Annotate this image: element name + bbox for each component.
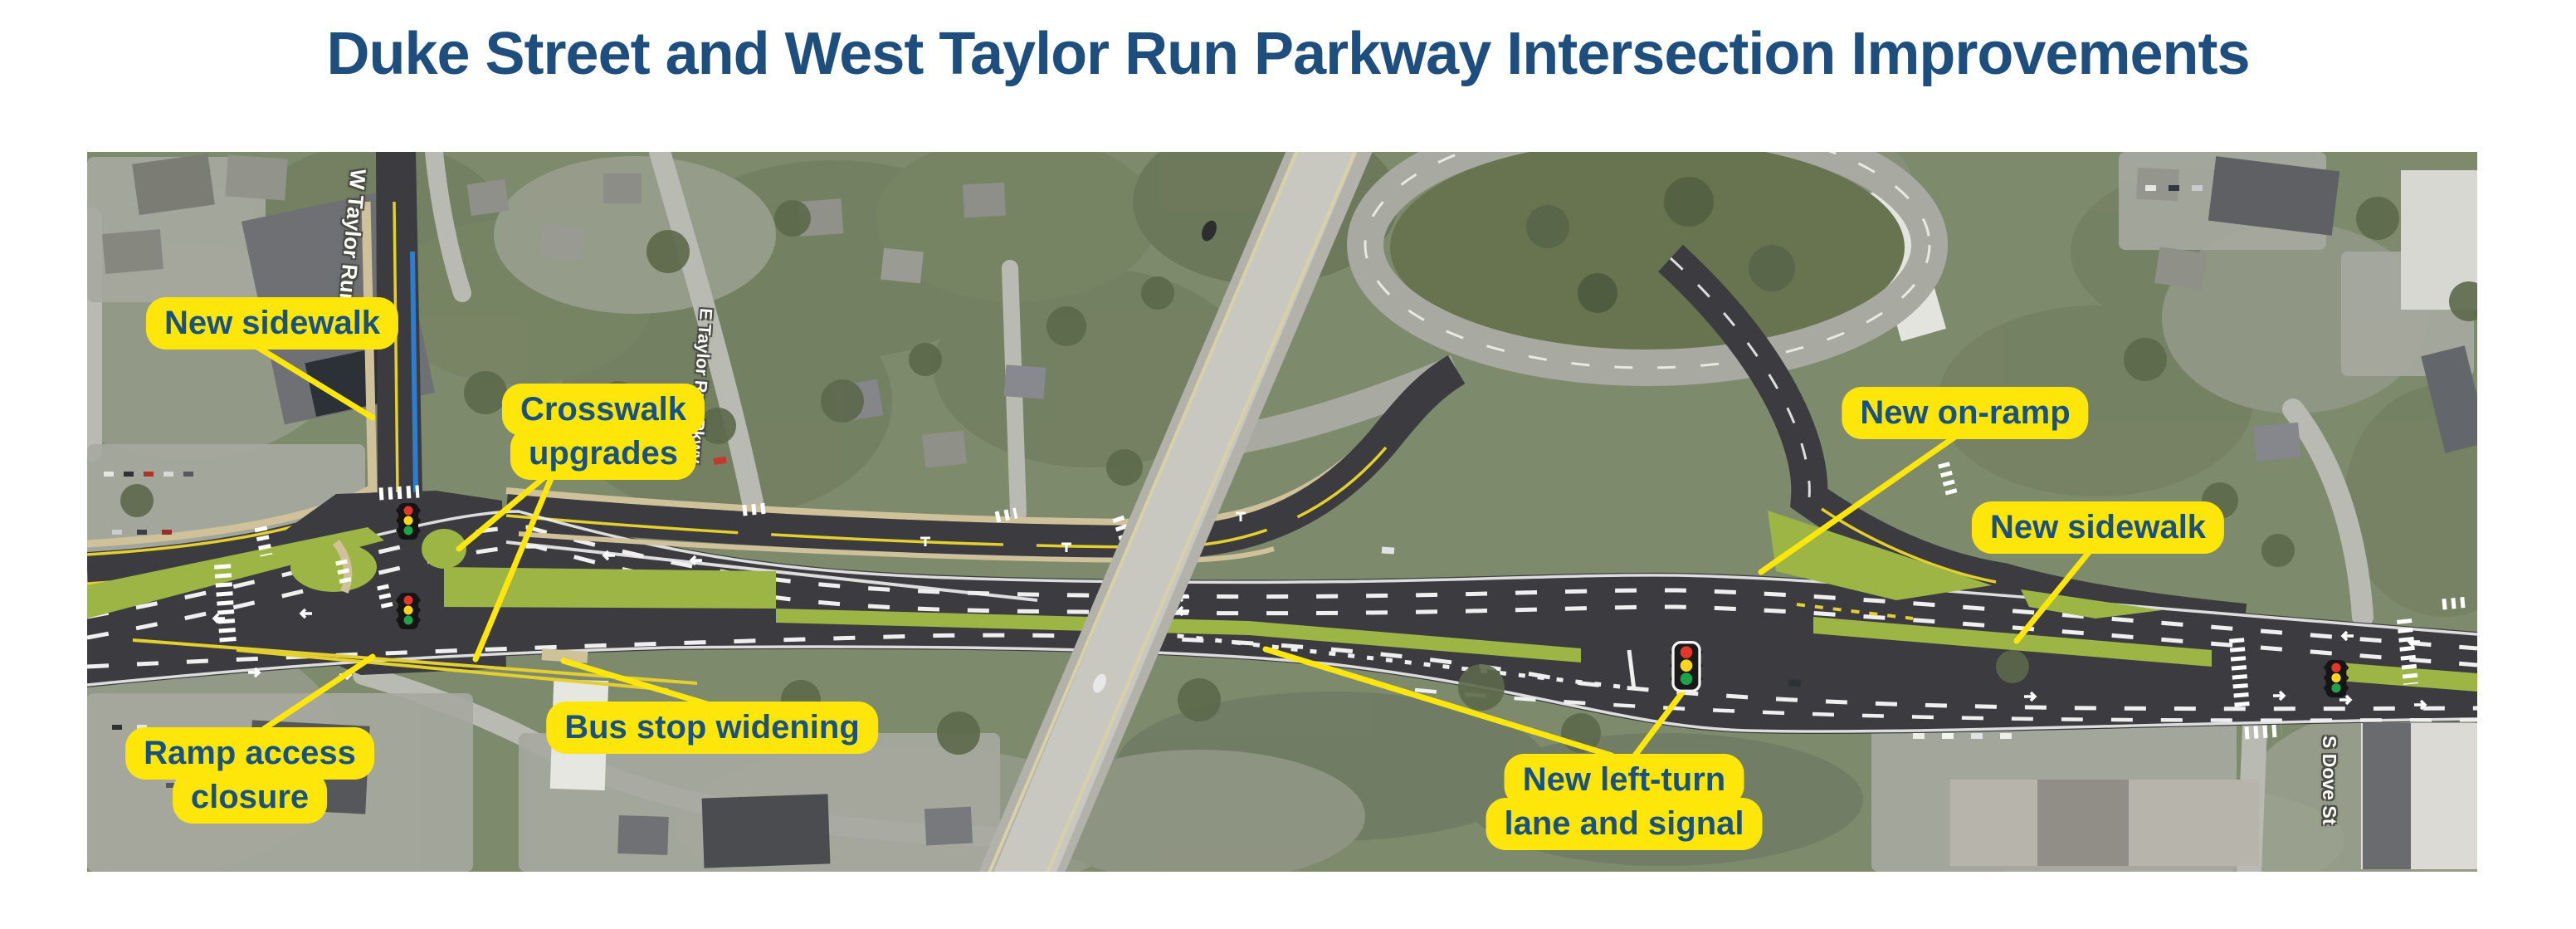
callout-new-left-turn-lane-and-signal: New left-turn lane and signal [1486,754,1763,850]
infographic-page: { "title": "Duke Street and West Taylor … [0,0,2576,929]
callout-new-sidewalk-left: New sidewalk [146,297,398,350]
callout-label: lane and signal [1486,798,1763,850]
callout-label: New sidewalk [1972,501,2224,554]
callout-new-on-ramp: New on-ramp [1842,387,2088,439]
callout-label: closure [173,771,327,824]
traffic-signal-icon-new [1670,641,1703,692]
street-label-s-dove-st: S Dove St [2318,736,2340,824]
traffic-signal-icon [396,592,421,630]
page-title: Duke Street and West Taylor Run Parkway … [0,20,2576,88]
callout-label: New sidewalk [146,297,398,350]
callout-label: Bus stop widening [546,702,878,754]
callout-bus-stop-widening: Bus stop widening [546,702,878,754]
traffic-signal-icon [396,502,421,540]
callout-new-sidewalk-right: New sidewalk [1972,501,2224,554]
traffic-signal-icon [2323,659,2349,698]
callout-label: upgrades [510,428,696,480]
callout-label: New on-ramp [1842,387,2088,439]
callout-crosswalk-upgrades: Crosswalk upgrades [502,384,705,480]
callout-ramp-access-closure: Ramp access closure [125,727,374,824]
